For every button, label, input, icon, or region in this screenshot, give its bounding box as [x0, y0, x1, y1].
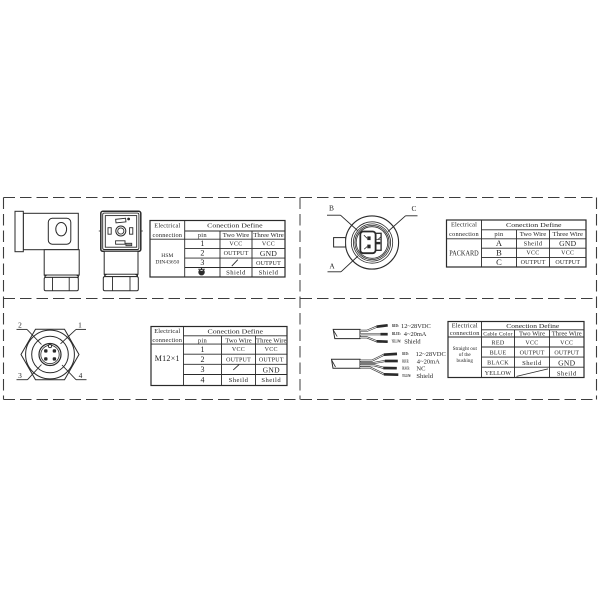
svg-text:Electrical: Electrical: [154, 222, 180, 229]
svg-text:VCC: VCC: [526, 251, 539, 257]
svg-text:Three Wire: Three Wire: [552, 330, 582, 337]
svg-text:RED:: RED:: [402, 352, 408, 356]
svg-text:3: 3: [18, 371, 22, 380]
svg-text:Three Wire: Three Wire: [253, 232, 284, 239]
svg-text:12~28VDC: 12~28VDC: [401, 323, 431, 330]
svg-text:2: 2: [201, 355, 205, 364]
svg-text:C: C: [412, 204, 417, 213]
svg-text:DIN43650: DIN43650: [155, 260, 179, 266]
svg-text:4~20mA: 4~20mA: [417, 358, 440, 365]
svg-text:GND: GND: [558, 359, 576, 368]
svg-text:Conection Define: Conection Define: [506, 222, 562, 229]
svg-text:Sheild: Sheild: [557, 370, 577, 377]
svg-text:BLACK: BLACK: [487, 361, 509, 367]
svg-text:VCC: VCC: [561, 251, 574, 257]
svg-text:OUTPUT: OUTPUT: [520, 351, 545, 357]
svg-text:RED: RED: [492, 341, 505, 347]
svg-text:Electrical: Electrical: [452, 323, 478, 330]
svg-text:Sheild: Sheild: [261, 377, 281, 384]
svg-text:VCC: VCC: [232, 347, 245, 353]
svg-text:BLUE: BLUE: [490, 351, 507, 357]
svg-text:1: 1: [78, 321, 82, 330]
svg-text:Sheild: Sheild: [522, 360, 542, 367]
svg-text:VCC: VCC: [265, 347, 278, 353]
svg-text:Two Wire: Two Wire: [520, 231, 547, 238]
svg-text:VCC: VCC: [262, 242, 275, 248]
svg-text:Cable Color: Cable Color: [483, 331, 512, 337]
svg-text:of the: of the: [459, 351, 472, 358]
svg-text:GND: GND: [260, 249, 278, 258]
svg-text:VCC: VCC: [560, 341, 573, 347]
svg-text:Conection Define: Conection Define: [506, 323, 559, 330]
svg-text:3: 3: [201, 365, 205, 374]
svg-text:Sheild: Sheild: [524, 240, 543, 247]
svg-text:RED:: RED:: [392, 324, 399, 328]
svg-text:OUTPUT: OUTPUT: [555, 260, 580, 266]
svg-text:Conection Define: Conection Define: [208, 328, 264, 335]
svg-text:YELLOW: YELLOW: [485, 371, 512, 377]
svg-text:OUTPUT: OUTPUT: [226, 357, 251, 363]
svg-text:Sheild: Sheild: [229, 377, 249, 384]
svg-text:VCC: VCC: [525, 341, 538, 347]
svg-text:connection: connection: [450, 330, 480, 337]
svg-text:2: 2: [200, 249, 204, 258]
svg-text:connection: connection: [449, 231, 479, 238]
svg-text:Electrical: Electrical: [451, 222, 477, 229]
svg-text:GND: GND: [559, 239, 577, 248]
svg-text:A: A: [329, 261, 335, 270]
svg-text:OUTPUT: OUTPUT: [521, 260, 546, 266]
svg-text:YELLOW:: YELLOW:: [402, 374, 411, 378]
svg-text:OUTPUT: OUTPUT: [256, 261, 281, 267]
svg-text:4: 4: [79, 371, 83, 380]
svg-text:connection: connection: [152, 337, 182, 344]
svg-text:connection: connection: [153, 232, 183, 239]
svg-text:NC: NC: [416, 366, 425, 373]
svg-text:OUTPUT: OUTPUT: [224, 251, 249, 257]
svg-text:pin: pin: [198, 232, 208, 239]
svg-text:M12×1: M12×1: [155, 354, 180, 363]
svg-text:1: 1: [201, 345, 205, 354]
svg-text:Electrical: Electrical: [154, 328, 180, 335]
svg-text:Shield: Shield: [259, 270, 279, 277]
svg-text:Conection Define: Conection Define: [207, 223, 263, 230]
svg-text:Two Wire: Two Wire: [519, 330, 545, 337]
svg-text:HSM: HSM: [161, 253, 173, 259]
svg-text:4~20mA: 4~20mA: [404, 331, 427, 338]
svg-text:Shield: Shield: [404, 338, 421, 345]
svg-text:Two Wire: Two Wire: [223, 232, 250, 239]
svg-text:YELLOW:: YELLOW:: [392, 339, 401, 343]
svg-text:B: B: [329, 203, 334, 212]
svg-text:PACKARD: PACKARD: [449, 250, 478, 258]
svg-text:Shield: Shield: [416, 373, 433, 380]
svg-text:2: 2: [18, 321, 22, 330]
svg-text:1: 1: [200, 239, 204, 248]
svg-text:VCC: VCC: [229, 242, 242, 248]
svg-text:Shield: Shield: [226, 270, 246, 277]
svg-text:4: 4: [201, 376, 205, 385]
svg-text:pin: pin: [198, 337, 208, 344]
svg-text:Three Wire: Three Wire: [553, 231, 584, 238]
svg-text:BLUE:: BLUE:: [402, 359, 409, 363]
svg-text:3: 3: [200, 258, 204, 267]
svg-text:bushing: bushing: [457, 358, 474, 364]
svg-text:OUTPUT: OUTPUT: [554, 351, 579, 357]
svg-text:OUTPUT: OUTPUT: [259, 357, 284, 363]
svg-text:GND: GND: [263, 365, 281, 374]
svg-text:BLUE:: BLUE:: [392, 332, 401, 336]
svg-text:12~28VDC: 12~28VDC: [416, 351, 446, 358]
svg-text:C: C: [496, 257, 502, 267]
svg-text:Two Wire: Two Wire: [225, 337, 252, 344]
svg-text:Three Wire: Three Wire: [256, 337, 287, 344]
svg-text:BLACK:: BLACK:: [402, 367, 410, 371]
